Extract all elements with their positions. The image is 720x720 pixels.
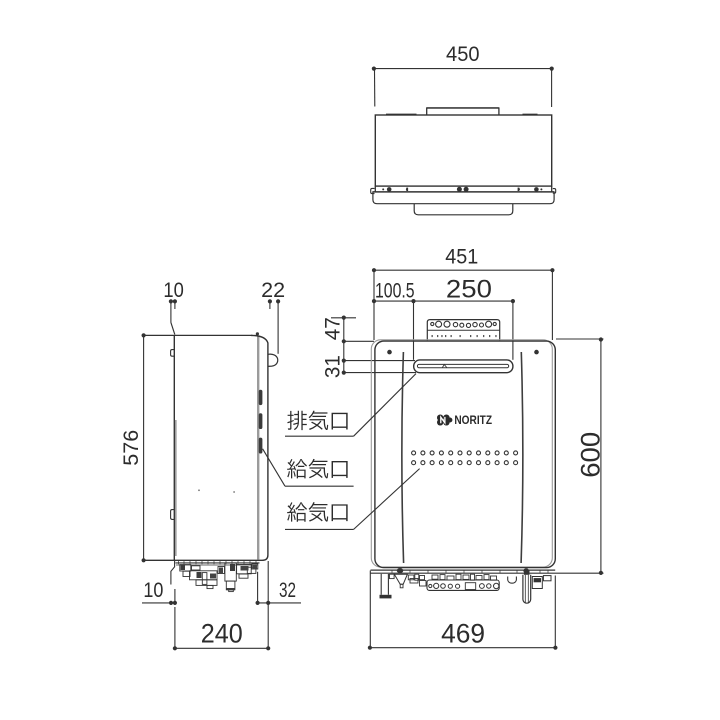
svg-text:240: 240 [201,618,243,648]
svg-text:32: 32 [279,578,296,602]
svg-text:600: 600 [575,432,605,478]
svg-text:47: 47 [321,317,345,340]
svg-text:469: 469 [441,618,485,648]
svg-text:NORITZ: NORITZ [454,414,492,427]
svg-text:100.5: 100.5 [375,279,415,303]
svg-text:576: 576 [119,430,143,466]
svg-text:450: 450 [446,42,480,66]
svg-text:31: 31 [321,355,345,378]
svg-text:10: 10 [163,278,183,302]
svg-text:22: 22 [261,278,285,302]
svg-text:451: 451 [445,245,478,269]
svg-text:10: 10 [143,578,163,602]
svg-text:250: 250 [446,276,492,304]
